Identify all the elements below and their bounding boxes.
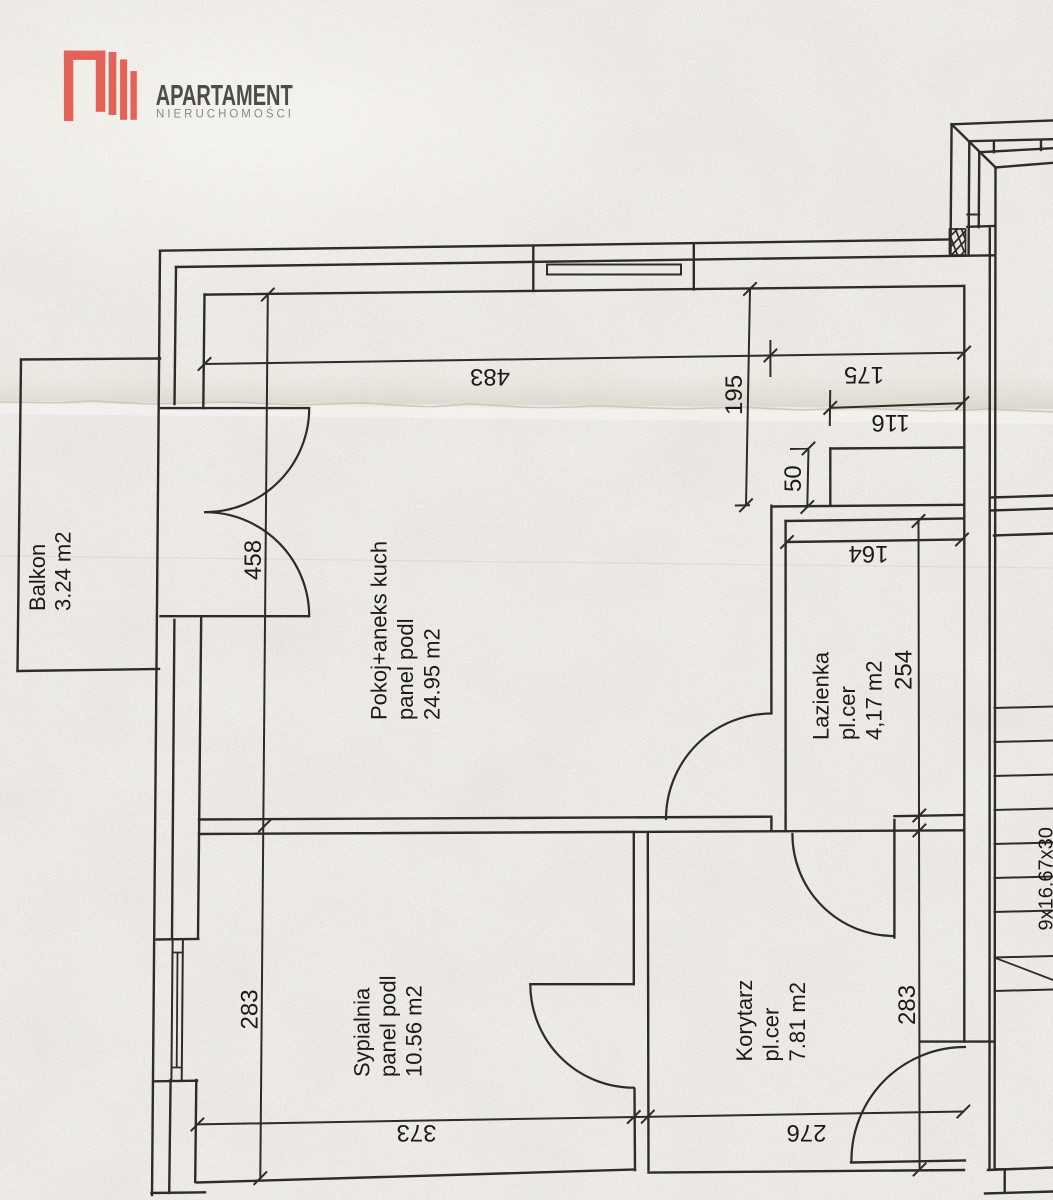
svg-text:164: 164 [848, 540, 888, 567]
svg-text:195: 195 [721, 375, 748, 415]
svg-text:10.56 m2: 10.56 m2 [402, 985, 427, 1077]
svg-text:24.95 m2: 24.95 m2 [420, 628, 445, 720]
svg-text:458: 458 [240, 540, 267, 580]
svg-text:7.81 m2: 7.81 m2 [785, 982, 810, 1062]
svg-text:373: 373 [396, 1119, 436, 1146]
svg-text:9x16.67x30: 9x16.67x30 [1036, 827, 1053, 930]
svg-text:116: 116 [871, 409, 909, 436]
svg-text:50: 50 [780, 465, 807, 492]
svg-text:NIERUCHOMOŚCI: NIERUCHOMOŚCI [156, 108, 291, 121]
svg-text:483: 483 [470, 363, 510, 390]
svg-text:175: 175 [844, 361, 884, 388]
svg-text:276: 276 [786, 1119, 826, 1146]
svg-text:pl.cer: pl.cer [759, 1008, 784, 1062]
svg-text:Korytarz: Korytarz [732, 980, 757, 1062]
svg-text:Balkon: Balkon [25, 544, 50, 611]
svg-text:Sypialnia: Sypialnia [350, 987, 375, 1077]
svg-text:pl.cer: pl.cer [835, 686, 860, 740]
svg-text:254: 254 [891, 650, 918, 690]
svg-text:panel podl: panel podl [376, 975, 401, 1077]
svg-text:APARTAMENT: APARTAMENT [156, 80, 293, 112]
svg-text:283: 283 [894, 985, 921, 1025]
svg-text:panel podl: panel podl [393, 618, 418, 720]
svg-text:Pokoj+aneks kuch: Pokoj+aneks kuch [367, 541, 392, 720]
svg-text:4,17 m2: 4,17 m2 [862, 661, 887, 741]
svg-text:3.24 m2: 3.24 m2 [51, 532, 76, 612]
svg-text:Lazienka: Lazienka [809, 651, 834, 740]
svg-text:283: 283 [236, 989, 263, 1029]
